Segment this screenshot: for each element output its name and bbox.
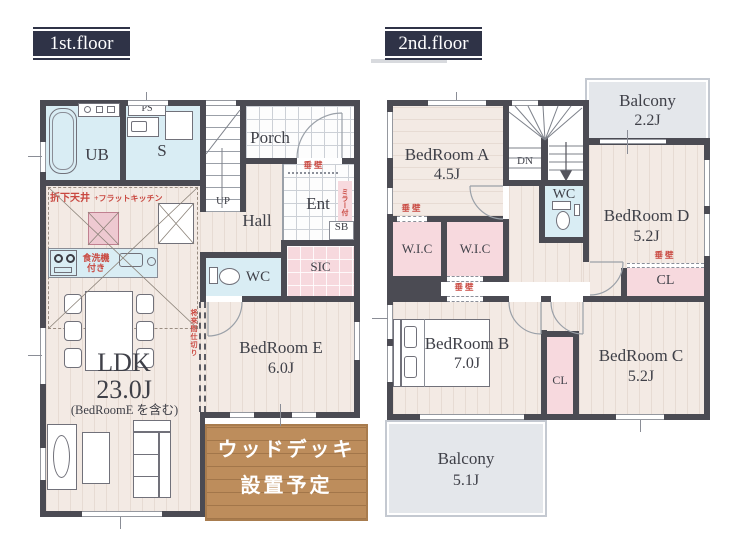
- hanging-wall-opening: [447, 296, 483, 302]
- ldk-note-label: (BedRoomE を含む): [52, 404, 197, 418]
- room-label-cl-b: CL: [547, 374, 573, 387]
- room-label-hall: Hall: [227, 212, 287, 230]
- window: [40, 448, 46, 480]
- tv-icon: [53, 435, 70, 478]
- window: [428, 100, 486, 106]
- window: [292, 412, 316, 418]
- vanity-icon: [107, 106, 115, 113]
- window: [387, 346, 393, 382]
- sofa-cushion-line: [133, 454, 159, 455]
- kitchen-ceiling-note: 折下天井 +フラットキッチン: [50, 188, 196, 205]
- room-label-s: S: [140, 142, 184, 160]
- wall-segment: [200, 252, 287, 258]
- door-opening: [503, 186, 509, 219]
- dining-chair: [64, 321, 82, 341]
- washer: [165, 111, 193, 140]
- window: [600, 139, 666, 144]
- hanging-wall-dotted-line: [288, 172, 338, 174]
- window: [704, 214, 710, 256]
- toilet-tank-1f: [209, 267, 218, 284]
- stairs-dn-label: DN: [507, 156, 543, 168]
- window: [40, 328, 46, 384]
- room-label-wc-2f: WC: [545, 187, 583, 202]
- wall-segment: [573, 337, 579, 414]
- balcony-bottom: [385, 420, 547, 517]
- room-label-bedroom-e: BedRoom E: [220, 339, 342, 357]
- room-label-ub: UB: [72, 146, 122, 164]
- balcony-top: [585, 78, 710, 144]
- room-label-porch: Porch: [230, 129, 310, 147]
- window: [82, 511, 162, 517]
- future-partition-line: [199, 302, 206, 412]
- door-opening: [551, 296, 583, 302]
- low-table: [82, 432, 110, 484]
- room-label-bedroom-b: BedRoom B: [407, 335, 527, 353]
- vanity-bowl-icon: [84, 106, 91, 113]
- sofa-seat: [133, 432, 159, 498]
- ldk-label: LDK: [84, 349, 164, 377]
- kitchen-faucet: [147, 257, 156, 266]
- ldk-size-label: 23.0J: [74, 376, 174, 404]
- dimension-tick: [627, 130, 628, 154]
- window: [512, 100, 538, 106]
- dimension-tick: [640, 420, 641, 432]
- hanging-wall-opening: [397, 216, 427, 222]
- room-size-bedroom-b: 7.0J: [407, 355, 527, 372]
- wall-segment: [503, 180, 589, 186]
- room-label-cl-d: CL: [627, 273, 704, 288]
- sofa-armrest: [133, 420, 171, 432]
- dimension-tick: [28, 355, 42, 356]
- dishwasher-note-line1: 食洗機: [82, 253, 109, 263]
- hanging-wall-note: 垂壁: [445, 283, 485, 292]
- hanging-wall-note-ent: 垂壁: [294, 161, 334, 170]
- dimension-tick: [280, 404, 281, 426]
- title-trim: [385, 58, 482, 60]
- future-partition-note: 将来間仕切り: [186, 300, 197, 366]
- toilet-bowl-2f: [556, 211, 570, 230]
- title-trim: [33, 27, 130, 29]
- wall-segment: [589, 296, 710, 302]
- wall-segment: [200, 252, 206, 302]
- dishwasher-note: 食洗機 付き: [76, 254, 116, 273]
- stove-burner-icon: [66, 254, 75, 263]
- wood-deck-note-line2: 設置予定: [207, 476, 366, 498]
- balcony-top-label: Balcony: [587, 92, 708, 110]
- wall-segment: [541, 330, 547, 414]
- room-label-ent: Ent: [288, 195, 348, 213]
- room-label-bedroom-d: BedRoom D: [589, 207, 704, 225]
- dining-chair: [136, 321, 154, 341]
- room-label-bedroom-a: BedRoom A: [387, 146, 507, 164]
- dining-chair: [64, 294, 82, 314]
- title-trim: [33, 58, 130, 60]
- floor-plan-canvas: 1st.floor 2nd.floor PS: [0, 0, 740, 555]
- wall-segment: [40, 180, 206, 186]
- kitchen-ceiling-note-1: 折下天井: [50, 193, 90, 204]
- kitchen-ceiling-note-2: +フラットキッチン: [94, 194, 163, 203]
- window: [354, 322, 360, 360]
- dimension-tick: [456, 92, 457, 100]
- stove-door: [54, 267, 72, 273]
- window: [206, 100, 236, 106]
- balcony-top-size: 2.2J: [587, 112, 708, 129]
- sb-label: SB: [329, 222, 354, 234]
- wood-deck-note-line1: ウッドデッキ: [207, 440, 366, 462]
- title-trim: [385, 27, 482, 29]
- wall-segment: [547, 331, 579, 337]
- window: [420, 414, 524, 420]
- hanging-wall-opening: [627, 263, 704, 268]
- hanging-wall-note: 垂壁: [645, 251, 685, 260]
- floor2-title: 2nd.floor: [385, 31, 482, 56]
- window: [704, 160, 710, 206]
- balcony-bottom-label: Balcony: [387, 450, 545, 468]
- dining-chair: [64, 348, 82, 368]
- wall-segment: [120, 106, 126, 180]
- sofa-back: [159, 432, 171, 498]
- room-label-wc-1f: WC: [232, 269, 284, 285]
- dimension-tick: [120, 517, 121, 529]
- window: [387, 305, 393, 339]
- sofa-cushion-line: [133, 476, 159, 477]
- window: [230, 412, 254, 418]
- kitchen-tall-cabinet: [158, 203, 194, 244]
- room-label-wic-right: W.I.C: [447, 242, 503, 256]
- window: [40, 142, 46, 172]
- door-opening: [509, 296, 541, 302]
- bed-headboard: [393, 319, 401, 387]
- dishwasher-note-line2: 付き: [87, 263, 105, 273]
- dimension-tick: [372, 318, 388, 319]
- room-size-bedroom-c: 5.2J: [581, 368, 701, 385]
- room-size-bedroom-a: 4.5J: [387, 166, 507, 183]
- dining-chair: [136, 294, 154, 314]
- hanging-wall-note: 垂壁: [392, 204, 432, 213]
- floor1-title: 1st.floor: [33, 31, 130, 56]
- room-label-wic-left: W.I.C: [393, 242, 441, 256]
- bathtub-inner: [52, 112, 74, 170]
- room-label-bedroom-c: BedRoom C: [581, 347, 701, 365]
- toilet-panel-2f: [574, 204, 580, 216]
- window: [128, 100, 168, 106]
- kitchen-island: [88, 212, 119, 245]
- room-hall: [246, 164, 283, 252]
- dimension-tick: [146, 92, 147, 100]
- balcony-bottom-size: 5.1J: [387, 472, 545, 489]
- stove-burner-icon: [54, 254, 63, 263]
- vanity-icon: [96, 106, 103, 113]
- room-label-sic: SIC: [287, 260, 354, 274]
- washstand-bowl: [131, 121, 147, 132]
- dimension-tick: [28, 156, 42, 157]
- wall-segment: [242, 296, 360, 302]
- toilet-tank-2f: [552, 201, 571, 210]
- kitchen-sink: [119, 253, 143, 267]
- stairs-up-label: UP: [204, 196, 242, 208]
- door-opening: [206, 296, 242, 302]
- room-size-bedroom-e: 6.0J: [220, 360, 342, 377]
- room-size-bedroom-d: 5.2J: [589, 228, 704, 245]
